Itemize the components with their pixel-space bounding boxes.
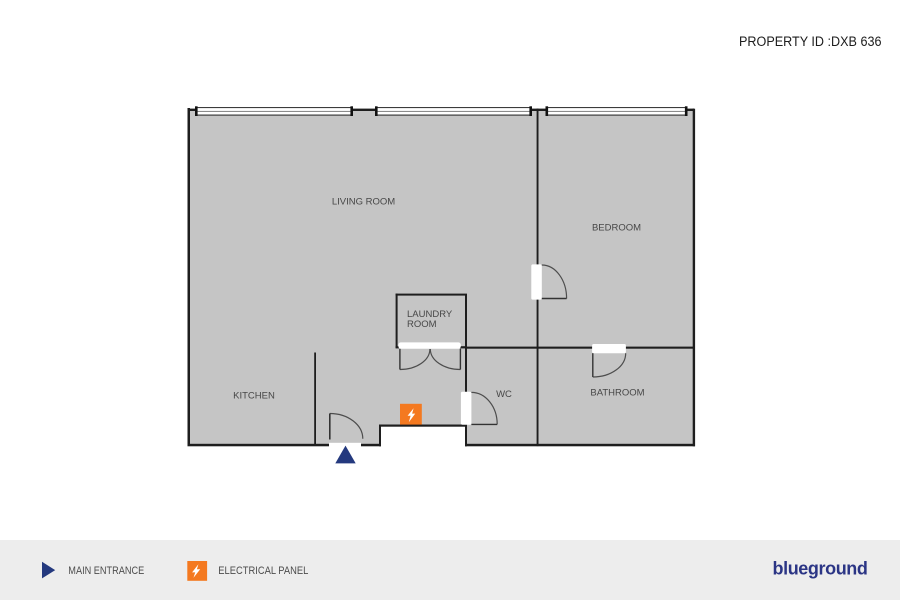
svg-text:BEDROOM: BEDROOM [592, 223, 641, 234]
svg-text:LIVING ROOM: LIVING ROOM [332, 197, 395, 208]
svg-text:KITCHEN: KITCHEN [233, 391, 275, 402]
svg-text:MAIN ENTRANCE: MAIN ENTRANCE [68, 565, 144, 577]
svg-text:PROPERTY ID :DXB 636: PROPERTY ID :DXB 636 [739, 34, 882, 49]
svg-text:BATHROOM: BATHROOM [590, 388, 644, 399]
svg-text:WC: WC [496, 389, 512, 400]
svg-text:blueground: blueground [773, 559, 868, 579]
svg-text:ELECTRICAL PANEL: ELECTRICAL PANEL [218, 565, 308, 577]
svg-text:ROOM: ROOM [407, 319, 437, 330]
